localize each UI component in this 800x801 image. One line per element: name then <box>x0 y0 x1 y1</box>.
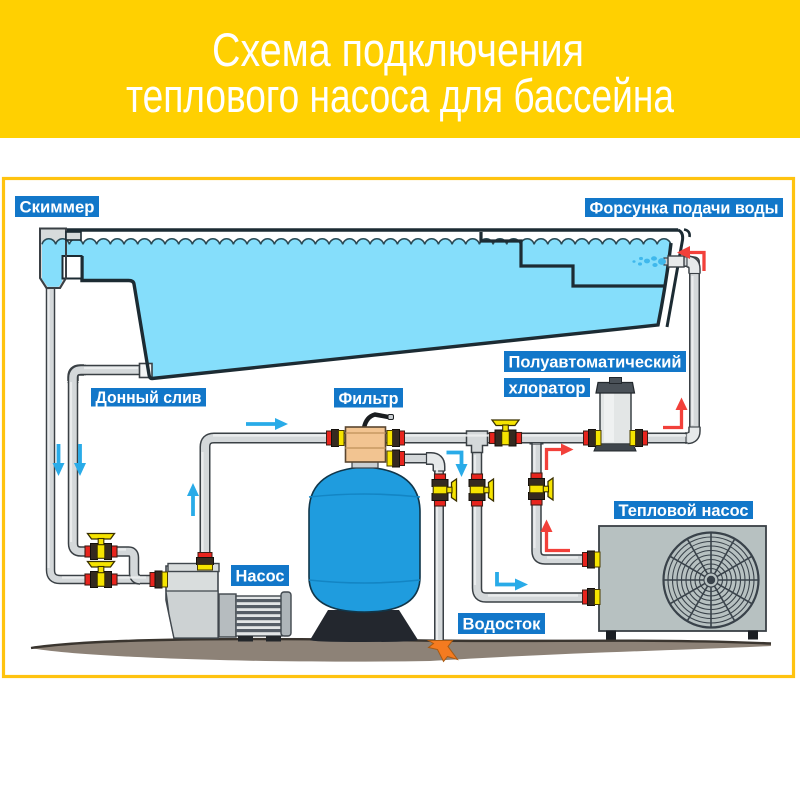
svg-text:Форсунка подачи воды: Форсунка подачи воды <box>590 199 779 218</box>
svg-text:Донный слив: Донный слив <box>96 388 202 407</box>
svg-text:Насос: Насос <box>236 567 285 586</box>
svg-text:Водосток: Водосток <box>463 615 541 634</box>
svg-text:теплового насоса для бассейна: теплового насоса для бассейна <box>126 69 675 122</box>
svg-text:Фильтр: Фильтр <box>339 389 399 408</box>
svg-text:хлоратор: хлоратор <box>509 379 586 398</box>
svg-text:Скиммер: Скиммер <box>20 198 95 217</box>
svg-text:Тепловой насос: Тепловой насос <box>619 501 749 520</box>
svg-text:Полуавтоматический: Полуавтоматический <box>509 353 682 372</box>
